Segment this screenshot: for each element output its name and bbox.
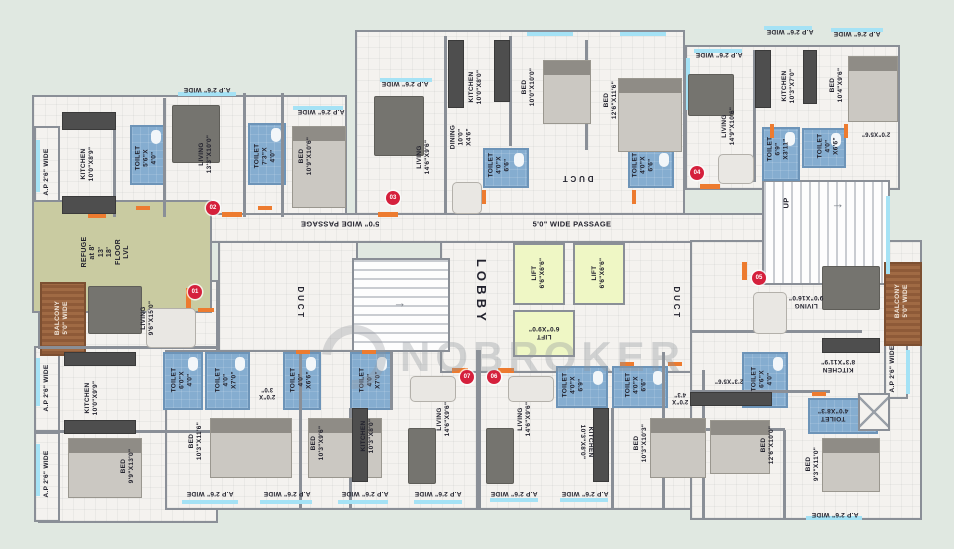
window-strip [527,32,573,36]
door-marker [620,362,634,366]
counter-furniture [494,40,510,102]
door-marker [700,184,720,189]
bed-flat03b-label: BED 12'6"X11'6" [603,81,619,119]
duct-right-label: D U C T [671,287,681,318]
ap-left-top-label: A.P 2'6" WIDE [43,148,51,195]
toilet-flat02a-label: TOILET 5'6"X 4'0" [134,146,157,171]
table-furniture [718,154,754,184]
bed-furniture [848,56,898,122]
sofa-furniture [486,428,514,484]
counter-furniture [64,420,136,434]
toilet-flat03a-label: TOILET 4'0"X 6'6" [487,153,510,178]
living-flat02-label: LIVING 13'3"X10'0" [198,135,214,174]
bed-flat01-label: BED 9'9"X13'0" [120,449,136,484]
kitchen-flat01-label: KITCHEN 10'0"X9'9" [84,381,100,416]
ap-top-strip1-label: A.P 2'6" WIDE [183,85,230,93]
counter-furniture [690,392,772,406]
toilet-flat01a-label: TOILET 6'0"X 4'0" [170,368,193,393]
toilet-flat05a-label: TOILET 4'0"X8'3" [818,406,849,422]
bed-flat07b-label: BED 10'3"X9'6" [310,426,326,461]
door-marker [498,368,514,373]
ap-top-strip5-label: A.P 2'6" WIDE [766,27,813,35]
door-marker [378,212,398,217]
living-flat05-label: LIVING 9'0"X16'0" [789,293,824,309]
duct-left-label: D U C T [295,287,305,318]
lift3-label: LIFT 6'0"X9'0" [529,324,560,340]
sofa-furniture [822,266,880,310]
living-flat01-label: LIVING 9'6"X15'0" [140,301,156,336]
dining-flat03-label: DINING 10'0" X4'6" [449,125,472,150]
refuge-label: REFUGE at 8' 13' 18' FLOOR LVL [81,237,131,268]
balcony-right-label: BALCONY 5'0" WIDE [894,284,910,318]
ap-bottom-1-label: A.P 2'6" WIDE [186,489,233,497]
wall-seg [163,98,166,217]
living-flat06-label: LIVING 14'6"X9'6" [517,402,533,437]
flat-number-marker: 07 [460,370,474,384]
floor-plan-canvas: A.P 2'6" WIDEKITCHEN 10'0"X8'9"TOILET 5'… [0,0,954,549]
bed-furniture [650,418,706,478]
wall-seg [390,352,393,410]
kitchen-flat02-label: KITCHEN 10'0"X8'9" [80,147,96,182]
niche2-label: 2'0"X 4'3" [672,390,688,404]
niche1-label: 2'0"X 3'0" [259,385,275,399]
door-marker [258,206,272,210]
door-marker [812,392,826,396]
ap-right-label: A.P 2'6" WIDE [889,345,897,392]
door-marker [198,308,214,312]
sofa-furniture [88,286,142,334]
toilet-flat07b-label: TOILET 4'0" X7'0" [358,368,381,393]
window-strip [414,500,462,504]
toilet-flat04a-label: TOILET 6'9" X3'11" [766,137,789,162]
niche4-label: 2'0"X5'6" [862,129,891,136]
wall-seg [281,93,284,217]
duct-left-floor [218,240,358,352]
table-furniture [452,182,482,214]
ap-left-bot-label: A.P 2'6" WIDE [43,450,51,497]
kitchen-flat07-label: KITCHEN 10'3"X8'0" [360,419,376,454]
stair-arrow-center: → [393,295,406,311]
ap-top-strip4-label: A.P 2'6" WIDE [695,50,742,58]
passage-floor [180,213,860,243]
window-strip [906,350,910,394]
living-flat04-label: LIVING 14'9"X10'6" [721,107,737,146]
niche3-label: 2'3"X5'6" [715,376,744,383]
window-strip [260,500,312,504]
door-marker [136,206,150,210]
door-marker [296,350,310,354]
kitchen-flat03-label: KITCHEN 10'0"X8'0" [468,70,484,105]
bed-flat07-label: BED 10'3"X11'6" [188,422,204,460]
ap-bottom-3-label: A.P 2'6" WIDE [341,489,388,497]
lift2-label: LIFT 6'6"X6'6" [591,258,607,289]
door-marker [844,124,848,138]
counter-furniture [62,196,116,214]
flat-number-marker: 06 [487,370,501,384]
flat-number-marker: 03 [386,191,400,205]
toilet-flat07a-label: TOILET 4'0" X6'6" [289,368,312,393]
window-strip [36,358,40,406]
duct-top-label: D U C T [563,173,594,183]
ap-bottom-2-label: A.P 2'6" WIDE [263,489,310,497]
lobby-label: L O B B Y [473,259,489,321]
ap-top-strip6-label: A.P 2'6" WIDE [833,29,880,37]
flat-number-marker: 05 [752,271,766,285]
counter-furniture [593,408,609,482]
door-marker [742,262,747,280]
ap-bot-right-label: A.P 2'6" WIDE [811,510,858,518]
window-strip [182,500,238,504]
sofa-furniture [408,428,436,484]
window-strip [620,32,666,36]
wall-seg [476,350,481,508]
window-strip [36,444,40,496]
window-strip [560,498,608,502]
flat-number-marker: 01 [188,285,202,299]
bed-flat05-label: BED 9'3"X11'0" [805,447,821,481]
table-furniture [508,376,554,402]
counter-furniture [64,352,136,366]
toilet-flat03b-label: TOILET 4'0"X 6'6" [631,153,654,178]
up-label: UP [782,197,791,208]
door-marker [88,214,106,218]
ap-bottom-4-label: A.P 2'6" WIDE [414,489,461,497]
balcony-left-label: BALCONY 5'0" WIDE [54,301,70,335]
passage-center-label: 5'0" WIDE PASSAGE [533,220,612,229]
duct-xbox [858,393,890,431]
door-marker [482,190,486,204]
wall-seg [243,93,246,217]
wall-seg [444,36,447,215]
toilet-flat05b-label: TOILET 6'6"X 4'0" [750,367,773,392]
table-furniture [753,292,787,334]
ap-left-mid-label: A.P 2'6" WIDE [43,364,51,411]
toilet-center1-label: TOILET 4'0"X 6'9" [561,373,584,398]
ap-top-strip2-label: A.P 2'6" WIDE [297,107,344,115]
flat-number-marker: 02 [206,201,220,215]
wall-seg [783,430,786,520]
toilet-flat02b-label: TOILET 7'3"X 4'0" [253,144,276,169]
window-strip [886,196,890,274]
ap-bottom-5-label: A.P 2'6" WIDE [490,489,537,497]
lift1-label: LIFT 6'6"X6'6" [531,258,547,289]
bed-flat03a-label: BED 10'0"X10'0" [521,68,537,107]
counter-furniture [822,338,880,353]
ap-top-strip3-label: A.P 2'6" WIDE [381,79,428,87]
door-marker [222,212,242,217]
window-strip [490,498,538,502]
flat-number-marker: 04 [690,166,704,180]
toilet-flat01b-label: TOILET 4'0" X7'0" [214,368,237,393]
kitchen-flat06-label: KITCHEN 10'3"X8'0" [578,425,594,460]
counter-furniture [803,50,817,104]
bed-furniture [210,418,292,478]
window-strip [338,500,388,504]
toilet-flat04b-label: TOILET 4'0" X6'6" [816,134,839,159]
passage-left-label: 5'0" WIDE PASSAGE [301,220,380,229]
toilet-center2-label: TOILET 4'0"X 6'6" [624,373,647,398]
bed-flat06-label: BED 10'3"X10'3" [633,424,649,463]
stair-arrow-topright: → [831,196,844,212]
counter-furniture [62,112,116,130]
bed-furniture [618,78,682,152]
wall-seg [611,408,614,510]
counter-furniture [755,50,771,108]
window-strip [36,140,40,192]
counter-furniture [448,40,464,108]
bed-furniture [822,438,880,492]
table-furniture [410,376,456,402]
bed-furniture [543,60,591,124]
kitchen-flat05-label: KITCHEN 8'3"X11'9" [821,357,855,373]
bed-flat02-label: BED 10'9"X10'6" [298,137,314,176]
bed-flat04-label: BED 10'4"X9'6" [829,68,845,103]
living-flat07-label: LIVING 14'6"X9'6" [436,402,452,437]
door-marker [632,190,636,204]
living-flat03-label: LIVING 14'6"X9'6" [416,140,432,175]
ap-bottom-6-label: A.P 2'6" WIDE [561,489,608,497]
kitchen-flat04-label: KITCHEN 10'3"X7'0" [781,69,797,104]
bed-flat06b-label: BED 12'6"X10'0" [760,426,776,465]
door-marker [668,362,682,366]
door-marker [362,350,376,354]
